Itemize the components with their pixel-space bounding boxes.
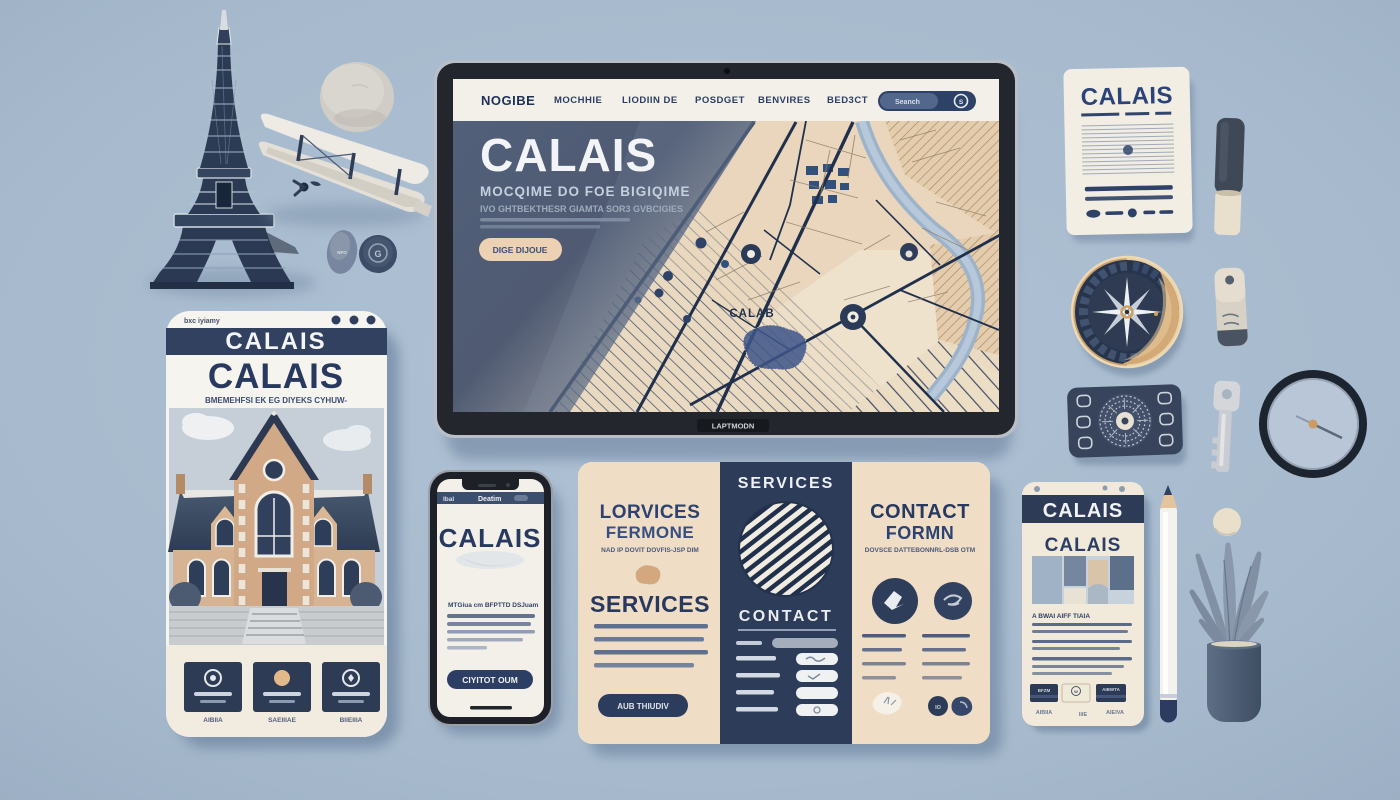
svg-text:CALAIS: CALAIS bbox=[208, 357, 344, 396]
svg-text:BIIEIIIA: BIIEIIIA bbox=[340, 717, 363, 724]
svg-text:SERVICES: SERVICES bbox=[590, 591, 710, 617]
svg-text:BMEMEHFSI EK EG DIYEKS CYHUW-: BMEMEHFSI EK EG DIYEKS CYHUW- bbox=[205, 396, 347, 405]
svg-text:CALAIS: CALAIS bbox=[480, 129, 657, 181]
svg-text:MOCHHIE: MOCHHIE bbox=[554, 95, 602, 106]
svg-text:CALAIS: CALAIS bbox=[225, 328, 326, 355]
svg-text:Ibal: Ibal bbox=[443, 496, 454, 503]
svg-text:FERMONE: FERMONE bbox=[606, 523, 695, 542]
svg-text:SERVICES: SERVICES bbox=[738, 475, 835, 492]
svg-text:DOVSCE DATTEBONNRL-DSB OTM: DOVSCE DATTEBONNRL-DSB OTM bbox=[865, 547, 975, 554]
svg-text:CONTACT: CONTACT bbox=[870, 501, 970, 523]
svg-text:POSDGET: POSDGET bbox=[695, 95, 745, 106]
svg-text:CALAIS: CALAIS bbox=[1043, 500, 1123, 522]
svg-text:AIBWTA: AIBWTA bbox=[1102, 687, 1120, 692]
svg-text:CALAIS: CALAIS bbox=[439, 523, 542, 553]
svg-text:MOCQIME DO FOE BIGIQIME: MOCQIME DO FOE BIGIQIME bbox=[480, 184, 691, 199]
svg-text:CIYITOT OUM: CIYITOT OUM bbox=[462, 675, 518, 685]
svg-text:NOGIBE: NOGIBE bbox=[481, 93, 535, 108]
svg-text:CONTACT: CONTACT bbox=[739, 608, 834, 625]
svg-text:LIODIIN DE: LIODIIN DE bbox=[622, 95, 678, 106]
svg-text:AIBIIA: AIBIIA bbox=[1036, 710, 1053, 716]
svg-text:AUB THIUDIV: AUB THIUDIV bbox=[617, 702, 669, 711]
svg-text:IiIE: IiIE bbox=[1079, 712, 1088, 718]
svg-text:CALAIS: CALAIS bbox=[1080, 82, 1173, 111]
svg-text:CALAB: CALAB bbox=[729, 308, 774, 320]
svg-text:SAEIIIAE: SAEIIIAE bbox=[268, 717, 296, 724]
svg-text:LAPTMODN: LAPTMODN bbox=[712, 422, 755, 431]
svg-text:W: W bbox=[1074, 689, 1078, 694]
svg-text:BFZM: BFZM bbox=[1038, 688, 1051, 693]
svg-text:BENVIRES: BENVIRES bbox=[758, 95, 811, 106]
svg-text:BED3CT: BED3CT bbox=[827, 95, 868, 106]
svg-text:AIBIIA: AIBIIA bbox=[203, 717, 223, 724]
svg-text:Deatim: Deatim bbox=[478, 496, 501, 503]
svg-text:LORVICES: LORVICES bbox=[600, 502, 701, 523]
svg-text:A BWAI AIFF TIAIA: A BWAI AIFF TIAIA bbox=[1032, 613, 1090, 620]
svg-text:bxc iyiamy: bxc iyiamy bbox=[184, 318, 220, 325]
svg-text:S: S bbox=[959, 99, 964, 106]
svg-text:NFO: NFO bbox=[337, 250, 347, 255]
svg-text:Seanch: Seanch bbox=[895, 99, 920, 106]
svg-text:G: G bbox=[374, 249, 381, 259]
svg-text:DIGE DIJOUE: DIGE DIJOUE bbox=[493, 245, 548, 255]
svg-text:MTGiua cm BFPTTD DSJuam: MTGiua cm BFPTTD DSJuam bbox=[448, 602, 539, 609]
svg-text:CALAIS: CALAIS bbox=[1045, 535, 1122, 556]
svg-text:IO: IO bbox=[935, 705, 942, 711]
svg-text:IVO GHTBEKTHESR GIAMTA SOR3 GV: IVO GHTBEKTHESR GIAMTA SOR3 GVBCIGIES bbox=[480, 204, 683, 214]
svg-text:FORMN: FORMN bbox=[886, 523, 955, 543]
svg-text:NAD IP DOVIT DOVFIS-JSP DIM: NAD IP DOVIT DOVFIS-JSP DIM bbox=[601, 547, 699, 554]
svg-text:AIEIVA: AIEIVA bbox=[1106, 710, 1124, 716]
